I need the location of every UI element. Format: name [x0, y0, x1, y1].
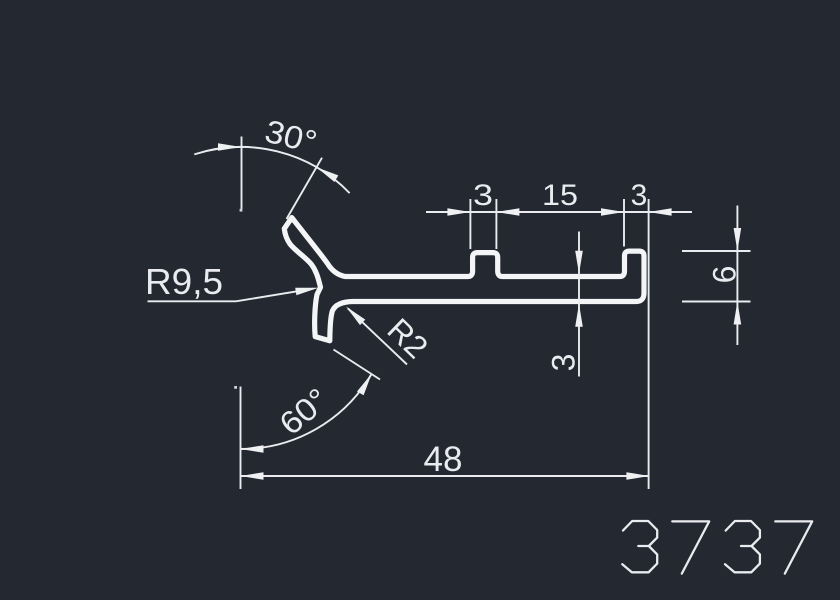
- svg-text:15: 15: [542, 179, 578, 212]
- svg-text:6: 6: [707, 266, 743, 284]
- svg-text:3: 3: [546, 354, 582, 372]
- svg-text:48: 48: [424, 440, 463, 479]
- svg-text:R9,5: R9,5: [145, 261, 223, 302]
- svg-text:3: 3: [631, 179, 648, 212]
- svg-text:3: 3: [473, 179, 493, 212]
